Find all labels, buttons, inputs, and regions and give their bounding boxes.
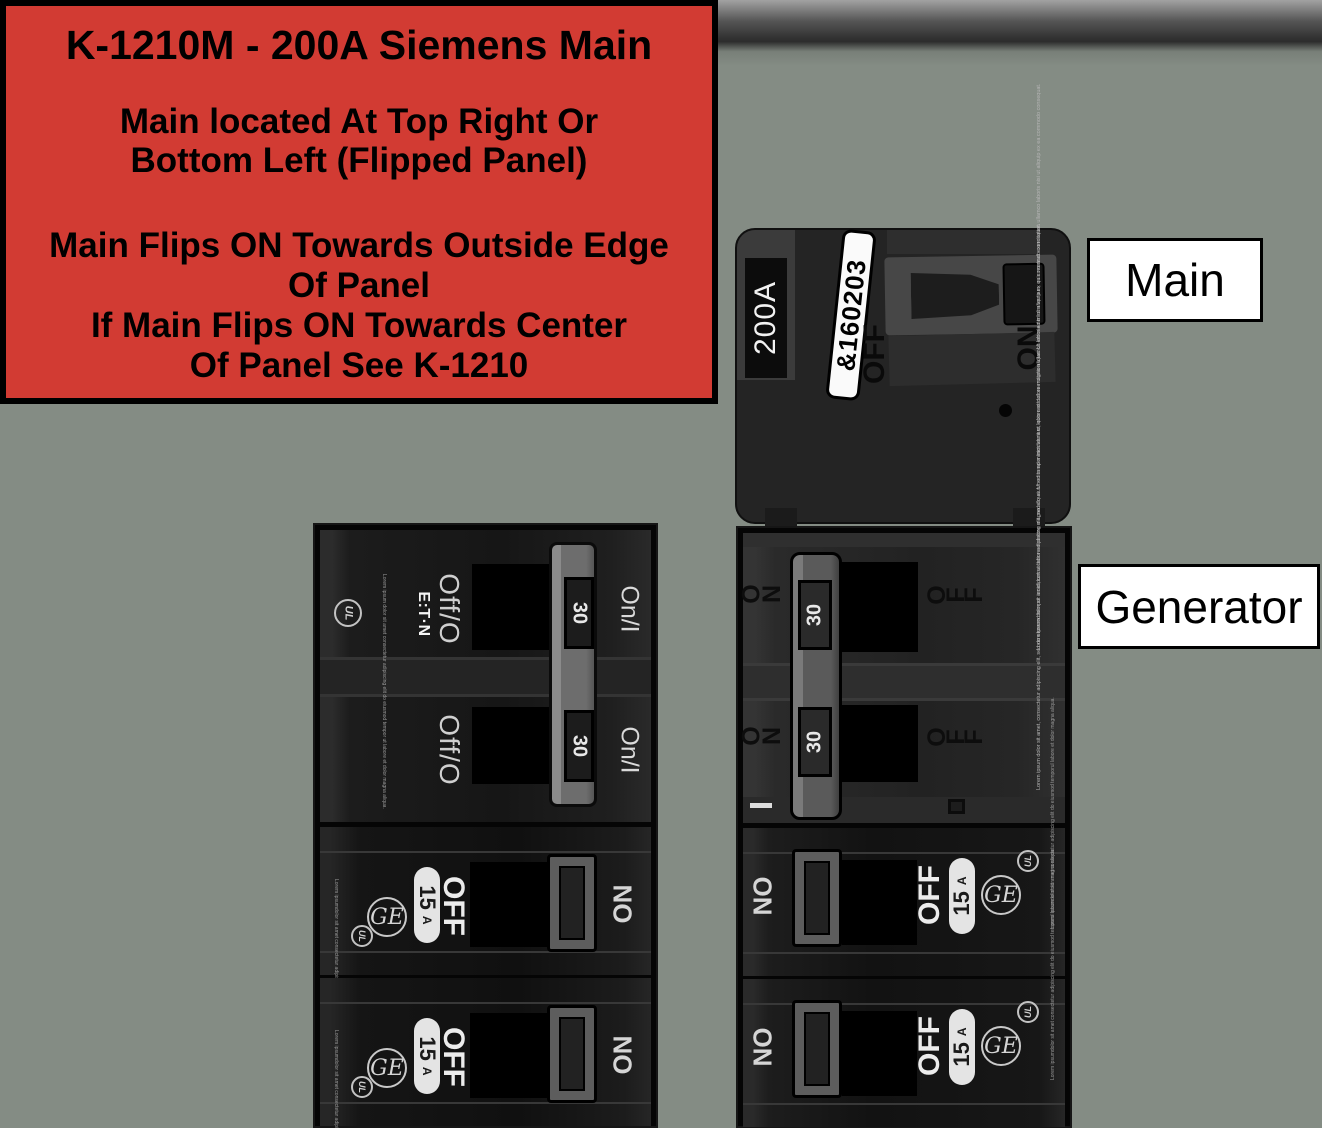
face-groove (320, 1002, 651, 1004)
breaker-window (470, 862, 547, 947)
ge-toggle-face (559, 866, 585, 940)
generator-label-text: Generator (1095, 580, 1302, 634)
instruction-line: Main Flips ON Towards Outside Edge (6, 226, 712, 266)
double-breaker-30a: ON ON 30 30 OFF OFF Lorem ipsum dolor si… (743, 533, 1065, 823)
ul-mark-icon: UL (1017, 1001, 1039, 1023)
fine-print: Lorem ipsumdolor sit amet consectetur ad… (1051, 1000, 1057, 1080)
generator-label: Generator (1078, 564, 1320, 649)
ul-mark-icon: UL (1017, 850, 1039, 872)
instruction-line: If Main Flips ON Towards Center (6, 306, 712, 346)
handle-amp-window: 30 (564, 710, 594, 782)
off-label: OFF (436, 876, 470, 936)
main-breaker-top-ridge (887, 230, 1037, 254)
pole1-window-recess (472, 564, 549, 650)
breaker-window (842, 860, 917, 945)
pole2-window-recess (842, 705, 918, 782)
ul-mark-icon: UL (334, 599, 362, 627)
eaton-logo: E:T·N (414, 591, 432, 636)
pole1-off-label: OFF (928, 581, 982, 610)
instruction-box: K-1210M - 200A Siemens Main Main located… (0, 0, 718, 404)
main-breaker-foot (765, 508, 797, 526)
fine-print: Lorem ipsum dolor sit amet consectetur a… (380, 574, 386, 654)
instruction-line: Of Panel (6, 266, 712, 306)
on-label: ON (608, 1036, 639, 1075)
ge-breaker-15a: Lorem ipsumdolor sit amet consectetur ad… (320, 827, 651, 975)
eaton-double-breaker-30a: UL Lorem ipsum dolor sit amet consectetu… (320, 530, 651, 822)
pole1-window-recess (842, 562, 918, 652)
ge-toggle-handle[interactable] (792, 849, 842, 947)
fine-print: Lorem ipsumdolor sit amet consectetur ad… (332, 879, 338, 959)
on-label: ON (608, 885, 639, 924)
ge-toggle-handle[interactable] (547, 854, 597, 952)
pole2-off-label: Off/O (433, 714, 465, 785)
handle-amp-window: 30 (798, 580, 832, 650)
fine-print: Lorem ipsum dolor sit amet, consectetur … (1036, 698, 1042, 790)
ge-breaker-15a: Lorem ipsumdolor sit amet consectetur ad… (320, 978, 651, 1126)
breaker-window (470, 1013, 547, 1098)
left-breaker-column: UL Lorem ipsum dolor sit amet consectetu… (313, 523, 658, 1128)
face-groove (743, 952, 1065, 954)
ge-toggle-handle[interactable] (547, 1005, 597, 1103)
face-groove (743, 1103, 1065, 1105)
ge-logo: GE (367, 1048, 407, 1088)
amp-pill: 15 A (949, 1009, 975, 1085)
main-breaker: 200A &160203 OFF ON (735, 228, 1071, 524)
ge-toggle-face (559, 1017, 585, 1091)
ge-logo: GE (981, 875, 1021, 915)
ge-logo: GE (367, 897, 407, 937)
instruction-paragraph-1: Main located At Top Right Or Bottom Left… (6, 102, 712, 180)
on-label: ON (747, 1028, 778, 1067)
instruction-title: K-1210M - 200A Siemens Main (6, 22, 712, 68)
pole2-on-label: ON (742, 722, 782, 751)
face-groove (320, 951, 651, 953)
pole2-window-recess (472, 707, 549, 784)
pole1-on-label: ON (742, 580, 782, 609)
ge-toggle-handle[interactable] (792, 1000, 842, 1098)
instruction-paragraph-2: Main Flips ON Towards Outside Edge Of Pa… (6, 226, 712, 386)
main-off-label: OFF (858, 324, 892, 384)
breaker-window (842, 1011, 917, 1096)
main-breaker-hole (999, 404, 1012, 417)
amp-pill: 15 A (949, 858, 975, 934)
main-label-text: Main (1125, 253, 1225, 307)
on-label: ON (747, 877, 778, 916)
face-groove (320, 1102, 651, 1104)
ge-toggle-face (804, 861, 830, 935)
main-toggle-handle[interactable] (911, 272, 1000, 320)
main-label: Main (1087, 238, 1263, 322)
breaker-panel-scene: K-1210M - 200A Siemens Main Main located… (0, 0, 1322, 1128)
bottom-dash-mark (750, 803, 772, 808)
main-amp-text: 200A (749, 281, 783, 355)
handle-amp-window: 30 (564, 577, 594, 649)
pole1-on-label: On/I (615, 585, 644, 632)
off-label: OFF (913, 1016, 947, 1076)
face-top-ridge (743, 533, 1065, 547)
off-label: OFF (436, 1027, 470, 1087)
pole1-off-label: Off/O (433, 573, 465, 644)
off-label: OFF (913, 865, 947, 925)
pole-divider (320, 657, 651, 697)
ge-logo: GE (981, 1026, 1021, 1066)
ge-breaker-15a: ON OFF 15 A GE UL Lorem ipsumdolor sit a… (743, 828, 1065, 976)
bottom-square-window (948, 799, 965, 814)
fine-print: Lorem ipsumdolor sit amet consectetur ad… (332, 1030, 338, 1110)
instruction-line: Main located At Top Right Or (6, 102, 712, 141)
instruction-line: Bottom Left (Flipped Panel) (6, 141, 712, 180)
main-amp-label: 200A (745, 258, 787, 378)
ge-breaker-15a: ON OFF 15 A GE UL Lorem ipsumdolor sit a… (743, 979, 1065, 1127)
right-breaker-column: ON ON 30 30 OFF OFF Lorem ipsum dolor si… (736, 526, 1072, 1128)
pole2-on-label: On/I (615, 726, 644, 773)
ge-toggle-face (804, 1012, 830, 1086)
handle-amp-window: 30 (798, 707, 832, 777)
face-groove (320, 851, 651, 853)
instruction-line: Of Panel See K-1210 (6, 346, 712, 386)
main-toggle-recess (884, 255, 1057, 336)
pole2-off-label: OFF (928, 723, 982, 752)
